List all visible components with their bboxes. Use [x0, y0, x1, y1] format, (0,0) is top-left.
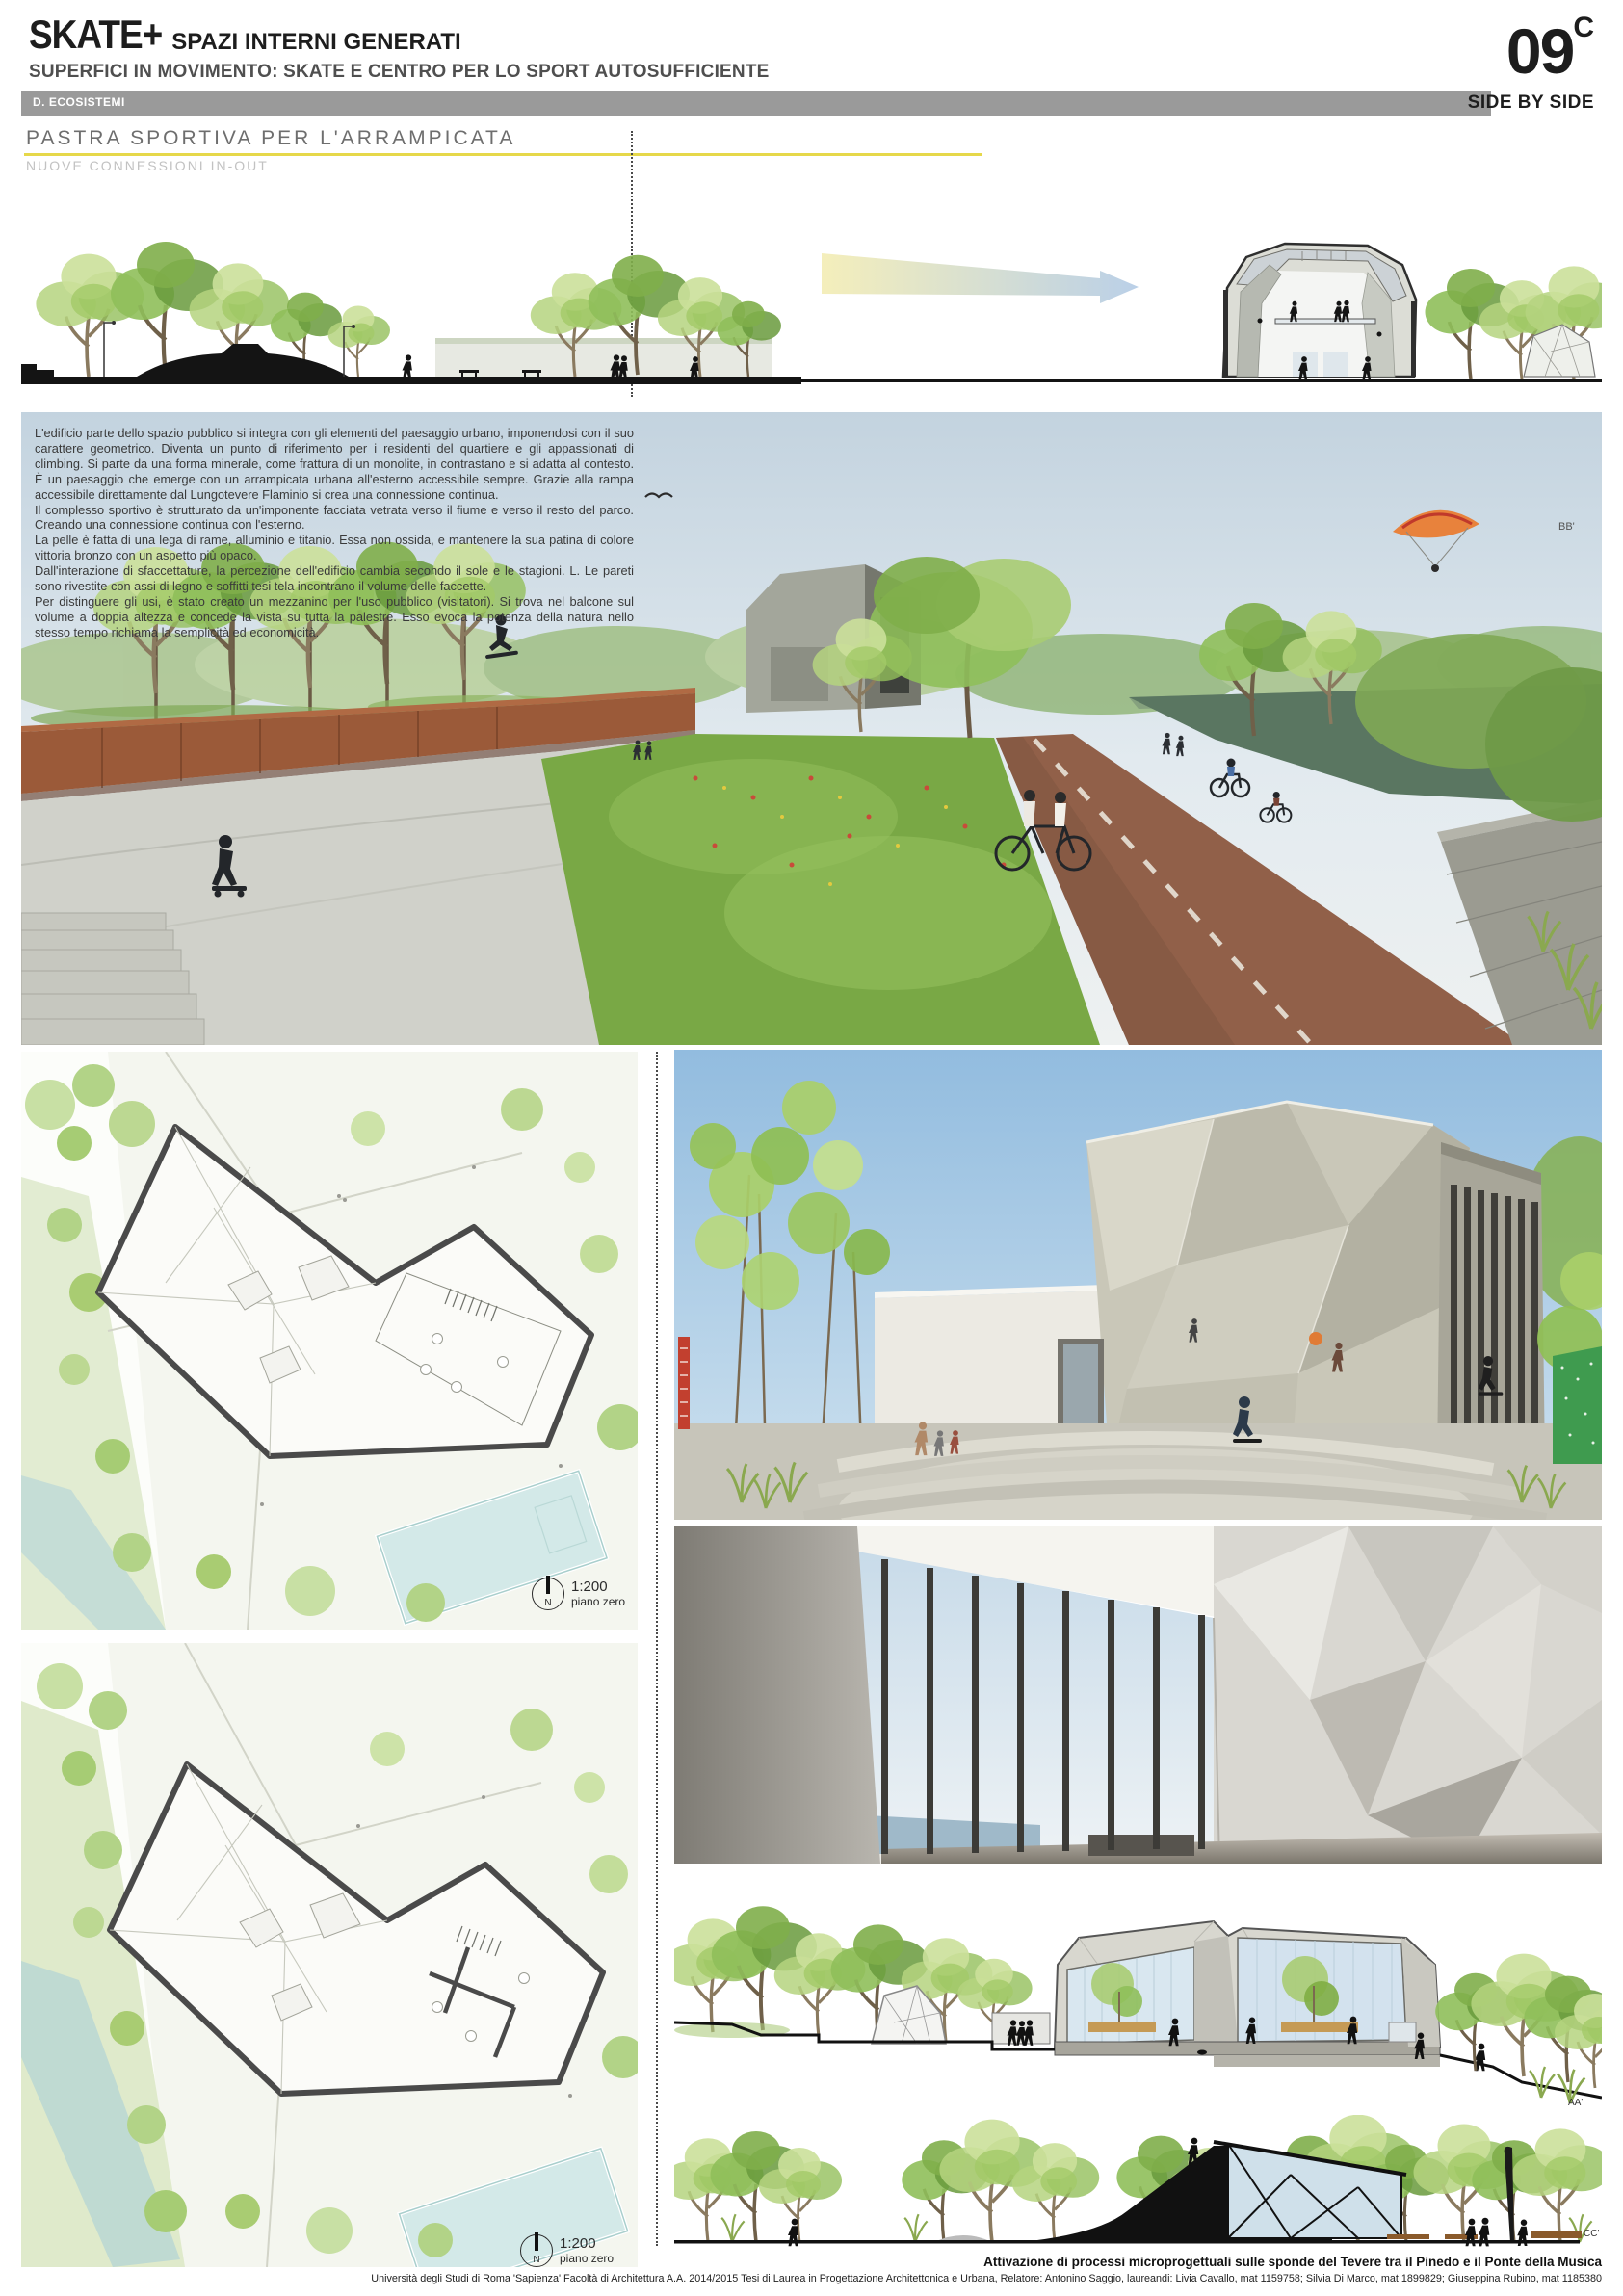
- ground-line: [674, 2240, 1580, 2244]
- plan-2-label: N 1:200piano zero: [520, 2234, 614, 2267]
- project-description: L'edificio parte dello spazio pubblico s…: [35, 426, 634, 640]
- plan-level: piano zero: [571, 1596, 625, 1608]
- description-paragraph: L'edificio parte dello spazio pubblico s…: [35, 426, 634, 503]
- description-paragraph: Dall'interazione di sfaccettature, la pe…: [35, 563, 634, 594]
- description-paragraph: Il complesso sportivo è strutturato da u…: [35, 503, 634, 534]
- sun-path-arrow: [822, 253, 1139, 303]
- amphitheater: [674, 1423, 1602, 1520]
- description-paragraph: Per distinguere gli usi, è stato creato …: [35, 594, 634, 640]
- building-section-aa: AA': [674, 1878, 1602, 2109]
- ball: [1309, 1332, 1322, 1345]
- retaining-wall: [435, 342, 772, 377]
- section-label-cc: CC': [1584, 2229, 1599, 2239]
- climbing-hall-section: [1223, 244, 1416, 380]
- plan-level: piano zero: [560, 2253, 614, 2265]
- main-building-section: [1055, 1921, 1440, 2067]
- project-subtitle: SUPERFICI IN MOVIMENTO: SKATE E CENTRO P…: [29, 62, 770, 83]
- red-ladder: [678, 1337, 690, 1429]
- category-label: D. ECOSISTEMI: [33, 95, 1491, 109]
- left-wall: [674, 1526, 880, 1864]
- description-paragraph: La pelle è fatta di una lega di rame, al…: [35, 533, 634, 563]
- site-plan-level-0-variant: [21, 1643, 638, 2267]
- footer-credits: Università degli Studi di Roma 'Sapienza…: [371, 2273, 1602, 2284]
- board-series: SIDE BY SIDE: [1468, 92, 1594, 114]
- site-plan-level-0: [21, 1052, 638, 1630]
- presentation-board: SKATE+SPAZI INTERNI GENERATI SUPERFICI I…: [0, 0, 1623, 2296]
- category-bar: D. ECOSISTEMI: [21, 91, 1491, 116]
- exterior-courtyard-render: [674, 1050, 1602, 1520]
- project-title-suffix: SPAZI INTERNI GENERATI: [171, 29, 460, 55]
- north-compass-icon: N: [520, 2234, 553, 2267]
- section-label-bb: BB': [1558, 521, 1575, 533]
- dotted-separator-main: [656, 1052, 658, 2246]
- section-title-underline: [24, 153, 982, 156]
- board-number: 09C: [1506, 13, 1594, 83]
- climbing-center-exterior: [1058, 1102, 1545, 1464]
- base-slab: [1055, 2042, 1440, 2055]
- page-title: SKATE+SPAZI INTERNI GENERATI: [29, 17, 461, 58]
- project-title: SKATE+: [29, 13, 162, 58]
- interior-render: [674, 1526, 1602, 1864]
- planter: [1281, 2022, 1358, 2032]
- section-subtitle: NUOVE CONNESSIONI IN-OUT: [26, 158, 269, 173]
- right-faceted-wall: [1214, 1526, 1602, 1864]
- site-section-elevation: [21, 197, 1602, 403]
- skate-bowl-silhouette: [137, 344, 349, 377]
- planter: [1088, 2022, 1156, 2032]
- building-section-cc: CC': [674, 2115, 1602, 2261]
- section-title: PASTRA SPORTIVA PER L'ARRAMPICATA: [26, 127, 515, 150]
- plan-1-label: N 1:200piano zero: [532, 1578, 625, 1610]
- lower-slab: [1214, 2055, 1440, 2067]
- footer-project-title: Attivazione di processi microprogettuali…: [983, 2255, 1602, 2269]
- section-label-aa: AA': [1568, 2098, 1583, 2108]
- north-compass-icon: N: [532, 1578, 564, 1610]
- reception-desk: [1088, 1835, 1194, 1856]
- ground-line: [21, 377, 801, 384]
- plan-scale: 1:200: [571, 1578, 608, 1595]
- climbing-wall-green: [1553, 1346, 1602, 1464]
- board-letter: C: [1573, 12, 1594, 43]
- plan-scale: 1:200: [560, 2235, 596, 2252]
